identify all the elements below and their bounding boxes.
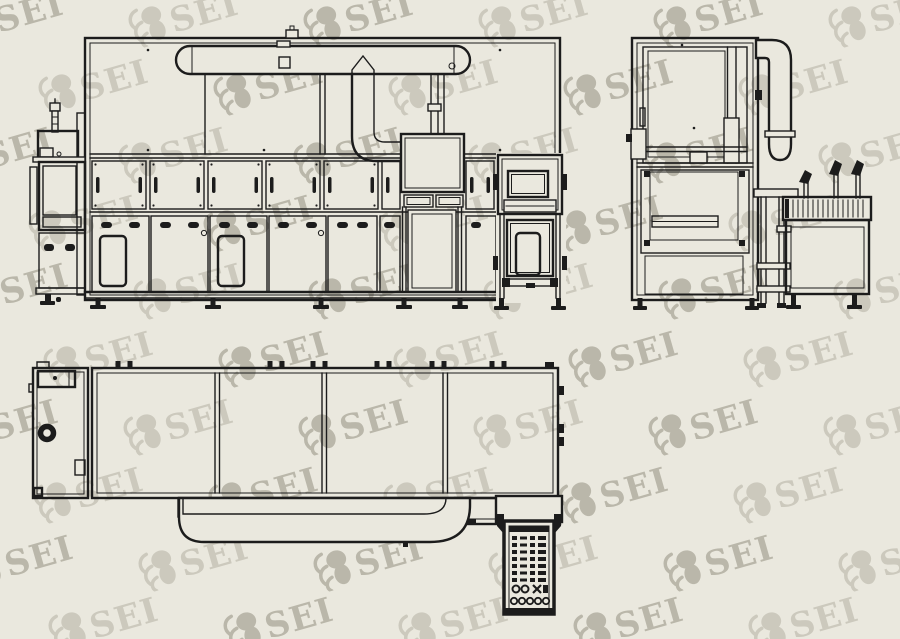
pipe-port: [41, 427, 54, 440]
panel: [208, 161, 262, 209]
panel: [466, 161, 494, 209]
panel: [150, 161, 204, 209]
leveling-feet: [786, 294, 862, 309]
station-door: [39, 233, 85, 288]
panel: [266, 161, 320, 209]
plan-view: [29, 361, 564, 614]
machine-drawing-svg: [0, 0, 900, 639]
side-elevation-view: [626, 38, 871, 310]
top-exhaust-duct: [176, 41, 470, 74]
control-pendant: [496, 496, 562, 614]
left-loading-station: [30, 99, 85, 305]
side-main-frame: [632, 38, 758, 300]
door-vent: [100, 236, 126, 286]
front-main-frame: [85, 38, 560, 300]
caster: [40, 294, 61, 305]
control-station: [493, 153, 567, 310]
plan-left-section: [29, 362, 88, 498]
plan-duct-run: [178, 498, 470, 547]
panel: [382, 161, 400, 209]
front-elevation-view: [30, 26, 567, 310]
filter-box-unit: [401, 134, 464, 292]
clamp-fixture: [799, 170, 812, 198]
door-vent: [218, 236, 244, 286]
blueprint-page: SEISEISEISEISEISEISEISEISEISEISEISEISEIS…: [0, 0, 900, 639]
viewing-window-panel: [39, 162, 85, 230]
clamp-fixture: [829, 160, 842, 198]
output-conveyor-table: [783, 160, 871, 309]
panel: [324, 161, 378, 209]
conveyor-slats: [793, 200, 863, 217]
keyhole: [201, 230, 206, 235]
plan-main-body: [92, 368, 558, 498]
signal-tower: [50, 99, 60, 132]
keyhole: [318, 230, 323, 235]
lower-cabinet-box: [507, 220, 553, 276]
panel: [92, 161, 146, 209]
clamp-fixture: [851, 160, 864, 198]
plan-dividers: [215, 373, 448, 493]
